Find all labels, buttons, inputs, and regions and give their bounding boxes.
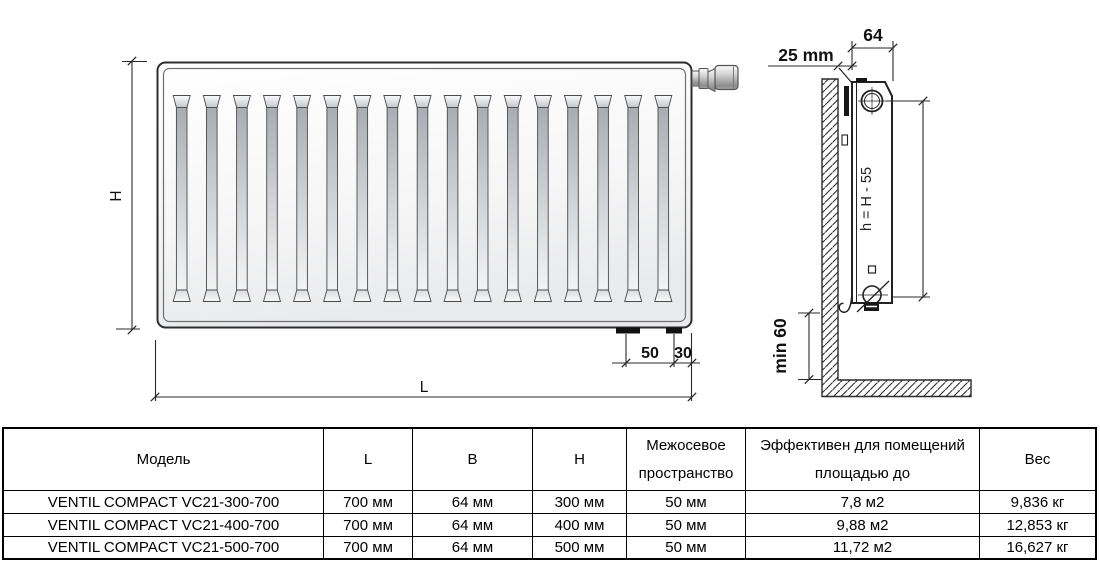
table-cell-spacing: 50 мм xyxy=(626,536,745,558)
technical-drawing: H L 50 30 xyxy=(0,0,1100,424)
length-dim-label: L xyxy=(420,379,429,396)
table-cell-model: VENTIL COMPACT VC21-500-700 xyxy=(4,536,323,558)
table-cell-depth: 64 мм xyxy=(412,490,532,513)
height-dim-label: H xyxy=(108,190,125,201)
table-cell-area: 9,88 м2 xyxy=(745,513,979,536)
table-cell-length: 700 мм xyxy=(323,490,412,513)
depth-dim-label: 64 xyxy=(863,25,883,45)
col-header-area: Эффективен для помещений площадью до xyxy=(745,429,979,490)
radiator-front-view xyxy=(158,63,739,334)
table-cell-model: VENTIL COMPACT VC21-400-700 xyxy=(4,513,323,536)
axis-height-label: h = H - 55 xyxy=(859,167,875,231)
table-cell-area: 7,8 м2 xyxy=(745,490,979,513)
table-cell-weight: 16,627 кг xyxy=(979,536,1095,558)
wall-gap-label: 25 mm xyxy=(778,45,833,65)
table-cell-weight: 9,836 кг xyxy=(979,490,1095,513)
col-header-area-line1: Эффективен для помещений xyxy=(760,438,965,453)
table-cell-area: 11,72 м2 xyxy=(745,536,979,558)
offset-30-label: 30 xyxy=(674,345,692,362)
table-cell-model: VENTIL COMPACT VC21-300-700 xyxy=(4,490,323,513)
table-cell-spacing: 50 мм xyxy=(626,513,745,536)
col-header-spacing: Межосевое пространство xyxy=(626,429,745,490)
table-cell-spacing: 50 мм xyxy=(626,490,745,513)
col-header-spacing-line1: Межосевое xyxy=(646,438,726,453)
offset-50-label: 50 xyxy=(641,345,659,362)
spec-table: Модель L B H Межосевое пространство Эффе… xyxy=(2,427,1097,560)
col-header-depth: B xyxy=(412,429,532,490)
table-cell-length: 700 мм xyxy=(323,513,412,536)
table-cell-depth: 64 мм xyxy=(412,536,532,558)
thermostatic-valve xyxy=(692,66,738,92)
col-header-area-line2: площадью до xyxy=(815,466,910,481)
table-cell-depth: 64 мм xyxy=(412,513,532,536)
table-cell-weight: 12,853 кг xyxy=(979,513,1095,536)
col-header-height: H xyxy=(532,429,626,490)
col-header-spacing-line2: пространство xyxy=(639,466,734,481)
col-header-weight: Вес xyxy=(979,429,1095,490)
col-header-length: L xyxy=(323,429,412,490)
table-cell-height: 400 мм xyxy=(532,513,626,536)
radiator-side-view xyxy=(822,68,971,397)
table-cell-height: 300 мм xyxy=(532,490,626,513)
table-cell-height: 500 мм xyxy=(532,536,626,558)
table-cell-length: 700 мм xyxy=(323,536,412,558)
radiator-spec-sheet: H L 50 30 xyxy=(0,0,1100,569)
wall-and-floor-hatch xyxy=(822,79,971,397)
col-header-model: Модель xyxy=(4,429,323,490)
floor-clearance-label: min 60 xyxy=(770,318,790,374)
